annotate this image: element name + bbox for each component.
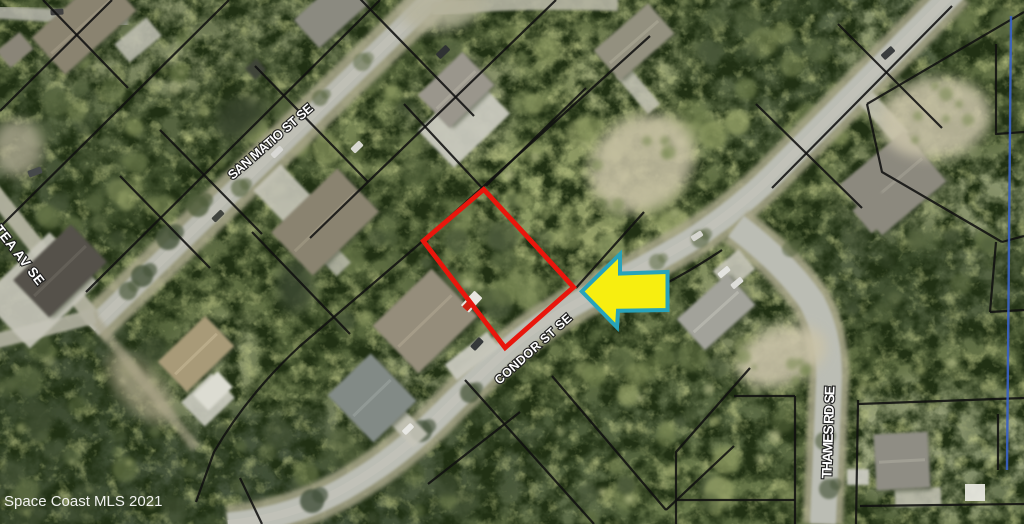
svg-text:THAMES RD SE: THAMES RD SE — [818, 386, 837, 479]
svg-text:Space Coast MLS 2021: Space Coast MLS 2021 — [4, 493, 162, 510]
